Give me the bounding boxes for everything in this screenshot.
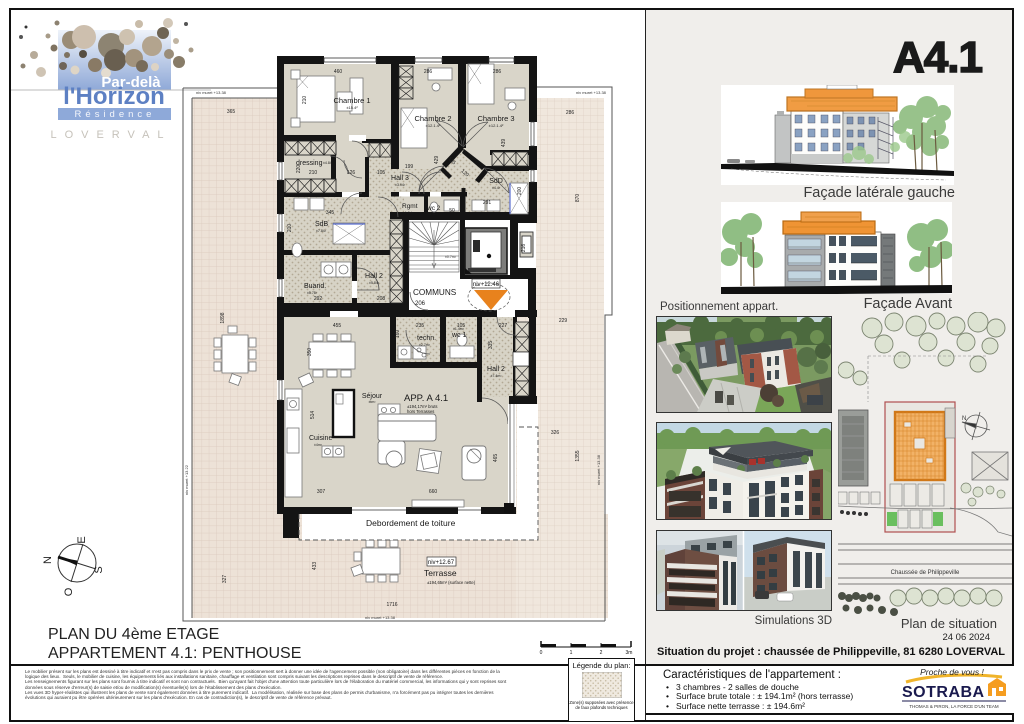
svg-text:210: 210 bbox=[287, 224, 293, 233]
svg-text:210: 210 bbox=[309, 170, 318, 176]
svg-text:±4.4²: ±4.4² bbox=[492, 186, 501, 190]
svg-text:Proche de vous !: Proche de vous ! bbox=[920, 667, 984, 677]
svg-text:Cuisine: Cuisine bbox=[309, 435, 332, 442]
svg-text:niv+12.67: niv+12.67 bbox=[428, 560, 455, 566]
svg-text:±4m²: ±4m² bbox=[314, 443, 323, 447]
svg-text:N: N bbox=[42, 556, 54, 564]
svg-text:460: 460 bbox=[334, 69, 343, 75]
svg-text:±3.94²: ±3.94² bbox=[395, 183, 406, 187]
svg-text:1355: 1355 bbox=[575, 450, 581, 461]
svg-text:±7.4m²: ±7.4m² bbox=[491, 374, 503, 378]
svg-text:160: 160 bbox=[395, 330, 401, 339]
svg-text:286: 286 bbox=[424, 69, 433, 75]
svg-text:429: 429 bbox=[434, 156, 440, 165]
svg-text:Chambre 2: Chambre 2 bbox=[414, 114, 451, 123]
svg-text:±12.1.4²: ±12.1.4² bbox=[426, 123, 441, 128]
svg-text:220: 220 bbox=[296, 165, 302, 174]
svg-text:Chaussée de Philippeville: Chaussée de Philippeville bbox=[891, 570, 960, 576]
svg-text:439: 439 bbox=[501, 139, 507, 148]
svg-text:±1.5d²: ±1.5d² bbox=[403, 211, 414, 215]
svg-text:hors Terrasses: hors Terrasses bbox=[407, 409, 434, 414]
svg-text:±tm²: ±tm² bbox=[369, 400, 377, 404]
svg-text:niv muret +13.38: niv muret +13.38 bbox=[596, 454, 601, 485]
svg-text:Chambre 3: Chambre 3 bbox=[477, 114, 514, 123]
svg-text:465: 465 bbox=[493, 454, 499, 463]
svg-text:126: 126 bbox=[347, 170, 356, 176]
svg-text:208: 208 bbox=[377, 296, 386, 302]
svg-text:0: 0 bbox=[540, 650, 543, 656]
svg-text:286: 286 bbox=[566, 110, 575, 116]
svg-text:455: 455 bbox=[333, 323, 342, 329]
svg-text:Hall 2: Hall 2 bbox=[365, 273, 383, 280]
svg-text:APP. A 4.1: APP. A 4.1 bbox=[404, 393, 448, 404]
svg-text:Rgmt: Rgmt bbox=[402, 203, 418, 210]
svg-text:±194,65m² (surface nette): ±194,65m² (surface nette) bbox=[427, 580, 476, 585]
svg-text:Séjour: Séjour bbox=[362, 393, 383, 400]
svg-text:niv muret +13.38: niv muret +13.38 bbox=[576, 90, 607, 95]
svg-text:niv muret +13.38: niv muret +13.38 bbox=[196, 90, 227, 95]
svg-text:O: O bbox=[63, 587, 75, 596]
svg-text:E: E bbox=[76, 536, 88, 543]
svg-text:2: 2 bbox=[600, 650, 603, 656]
svg-text:SdD: SdD bbox=[489, 178, 503, 185]
svg-text:±4.84²: ±4.84² bbox=[323, 161, 334, 165]
svg-text:105: 105 bbox=[377, 170, 386, 176]
svg-text:THOMAS & PIRON, LA FORCE D'UN: THOMAS & PIRON, LA FORCE D'UN TEAM bbox=[909, 704, 999, 709]
svg-text:1716: 1716 bbox=[386, 602, 397, 608]
svg-text:wc 2: wc 2 bbox=[426, 205, 441, 212]
svg-text:Hall 3: Hall 3 bbox=[391, 175, 409, 182]
svg-text:50: 50 bbox=[449, 208, 455, 214]
svg-text:±15.4²: ±15.4² bbox=[346, 105, 358, 110]
svg-text:227: 227 bbox=[499, 323, 508, 329]
svg-text:±1.4²: ±1.4² bbox=[428, 212, 437, 216]
svg-text:±2.7m²: ±2.7m² bbox=[419, 343, 431, 347]
svg-text:350: 350 bbox=[307, 348, 313, 357]
svg-text:Buand.: Buand. bbox=[304, 283, 326, 290]
svg-text:3m: 3m bbox=[626, 650, 633, 656]
svg-text:Chambre 1: Chambre 1 bbox=[333, 96, 370, 105]
svg-text:N: N bbox=[962, 416, 966, 422]
svg-text:365: 365 bbox=[227, 109, 236, 115]
svg-text:345: 345 bbox=[326, 210, 335, 216]
svg-text:1: 1 bbox=[570, 650, 573, 656]
svg-text:SdB: SdB bbox=[315, 221, 329, 228]
svg-text:SOTRABA: SOTRABA bbox=[902, 684, 985, 701]
svg-text:216: 216 bbox=[521, 244, 527, 253]
svg-text:292: 292 bbox=[314, 296, 323, 302]
svg-text:286: 286 bbox=[493, 69, 502, 75]
svg-text:870: 870 bbox=[575, 194, 581, 203]
svg-text:200: 200 bbox=[517, 187, 523, 196]
svg-text:±0.7m²: ±0.7m² bbox=[445, 255, 457, 259]
svg-text:techn.: techn. bbox=[417, 335, 436, 342]
svg-text:COMMUNS: COMMUNS bbox=[413, 288, 457, 297]
svg-text:1898: 1898 bbox=[220, 312, 226, 323]
svg-text:235: 235 bbox=[416, 323, 425, 329]
svg-text:307: 307 bbox=[317, 489, 326, 495]
svg-text:105: 105 bbox=[457, 323, 466, 329]
svg-text:niv muret +13.38: niv muret +13.38 bbox=[365, 615, 396, 620]
svg-text:±7.84²: ±7.84² bbox=[316, 229, 327, 233]
svg-text:wc 1: wc 1 bbox=[451, 332, 467, 339]
svg-text:291: 291 bbox=[483, 200, 492, 206]
svg-text:327: 327 bbox=[222, 575, 228, 584]
svg-text:514: 514 bbox=[310, 411, 316, 420]
svg-text:niv muret +13.22: niv muret +13.22 bbox=[184, 464, 189, 495]
svg-text:206: 206 bbox=[415, 301, 426, 307]
svg-text:Hall 2: Hall 2 bbox=[487, 366, 505, 373]
svg-text:Terrasse: Terrasse bbox=[424, 568, 457, 578]
svg-text:433: 433 bbox=[312, 562, 318, 571]
svg-text:335: 335 bbox=[488, 341, 494, 350]
svg-text:Debordement de toiture: Debordement de toiture bbox=[366, 518, 456, 528]
svg-text:660: 660 bbox=[429, 489, 438, 495]
svg-text:±12.1.4²: ±12.1.4² bbox=[489, 123, 504, 128]
svg-text:229: 229 bbox=[559, 318, 568, 324]
svg-text:±5.84²: ±5.84² bbox=[369, 281, 380, 285]
svg-text:210: 210 bbox=[302, 96, 308, 105]
svg-text:±5.78²: ±5.78² bbox=[307, 291, 318, 295]
svg-text:S: S bbox=[93, 566, 105, 573]
svg-text:326: 326 bbox=[551, 430, 560, 436]
svg-text:199: 199 bbox=[405, 164, 414, 170]
